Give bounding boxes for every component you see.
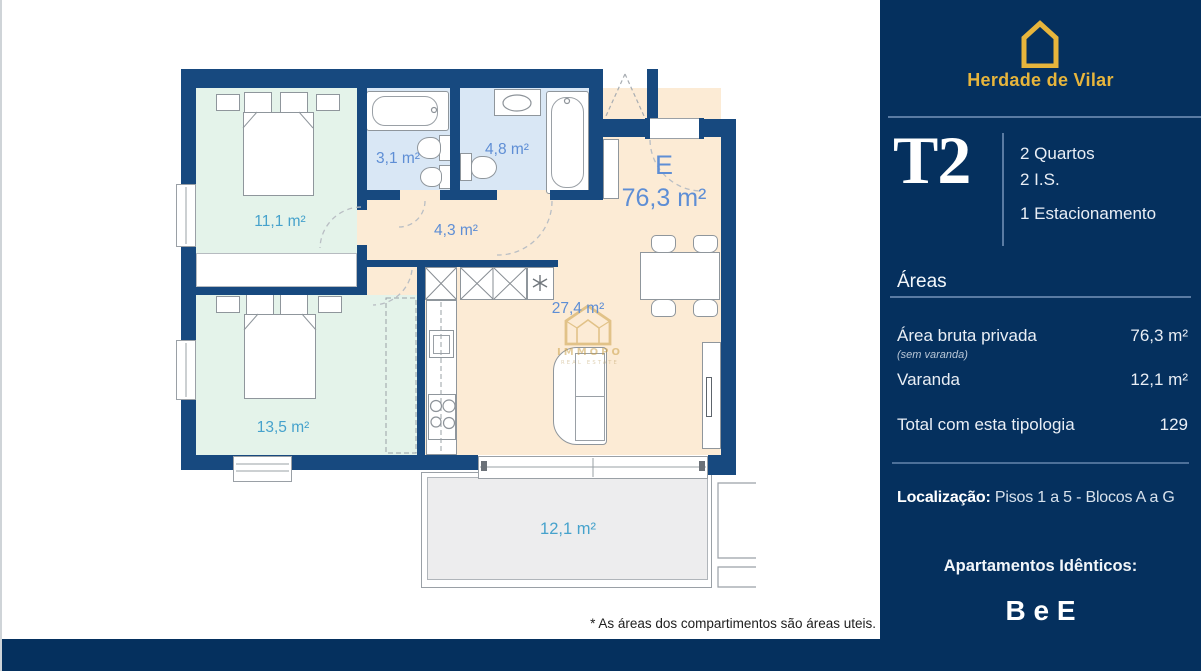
- identical-value: B e E: [880, 595, 1201, 627]
- watermark-subtitle: REAL ESTATE: [561, 360, 619, 366]
- typology-label: T2: [893, 126, 970, 194]
- area-row-note: (sem varanda): [897, 349, 968, 361]
- flyer: IMMOPO REAL ESTATE 11,1 m² 3,1 m² 4,8 m²…: [0, 0, 1201, 671]
- divider: [888, 116, 1201, 118]
- area-row-label: Varanda: [897, 370, 960, 390]
- hall-label: 4,3 m²: [416, 222, 496, 240]
- area-row-label: Área bruta privada: [897, 326, 1037, 346]
- unit-area-label: 76,3 m²: [612, 184, 716, 213]
- vertical-divider: [1002, 133, 1004, 246]
- bathroom2-label: 4,8 m²: [467, 141, 547, 159]
- area-row-label: Total com esta tipologia: [897, 415, 1075, 435]
- living-label: 27,4 m²: [536, 300, 620, 318]
- wardrobe-dashed: [386, 298, 441, 453]
- left-edge-line: [0, 0, 2, 671]
- footnote: * As áreas dos compartimentos são áreas …: [540, 616, 876, 631]
- fridge-asterisk-icon: [533, 275, 547, 291]
- area-row-value: 12,1 m²: [1130, 370, 1188, 390]
- house-icon: [1020, 20, 1060, 68]
- shaft-icon: [606, 74, 644, 116]
- area-row-value: 129: [1160, 415, 1188, 435]
- areas-heading: Áreas: [897, 271, 947, 293]
- cabinet-x-marks: [426, 268, 526, 299]
- bedroom1-label: 11,1 m²: [238, 213, 322, 231]
- unit-letter: E: [628, 150, 700, 181]
- info-sidebar: Herdade de Vilar T2 2 Quartos 2 I.S. 1 E…: [880, 0, 1201, 671]
- watermark-name: IMMOPO: [557, 347, 623, 358]
- brand-name: Herdade de Vilar: [880, 70, 1201, 91]
- location-label: Localização:: [897, 489, 991, 506]
- door-handle: [699, 461, 705, 471]
- location-line: Localização: Pisos 1 a 5 - Blocos A a G: [897, 489, 1175, 507]
- areas-underline: [890, 296, 1191, 298]
- bedroom2-label: 13,5 m²: [241, 419, 325, 437]
- feature-parking: 1 Estacionamento: [1020, 204, 1156, 224]
- balcony-label: 12,1 m²: [524, 520, 612, 539]
- location-value: Pisos 1 a 5 - Blocos A a G: [995, 489, 1175, 506]
- divider: [892, 462, 1189, 464]
- plan-lineart: IMMOPO REAL ESTATE: [0, 0, 880, 671]
- door-handle: [481, 461, 487, 471]
- area-row-value: 76,3 m²: [1130, 326, 1188, 346]
- floor-plan: IMMOPO REAL ESTATE 11,1 m² 3,1 m² 4,8 m²…: [0, 0, 880, 671]
- feature-bathrooms: 2 I.S.: [1020, 170, 1060, 190]
- bathroom1-label: 3,1 m²: [358, 150, 438, 168]
- identical-label: Apartamentos Idênticos:: [880, 557, 1201, 576]
- neighbour-balcony-outline: [718, 483, 756, 587]
- feature-bedrooms: 2 Quartos: [1020, 144, 1095, 164]
